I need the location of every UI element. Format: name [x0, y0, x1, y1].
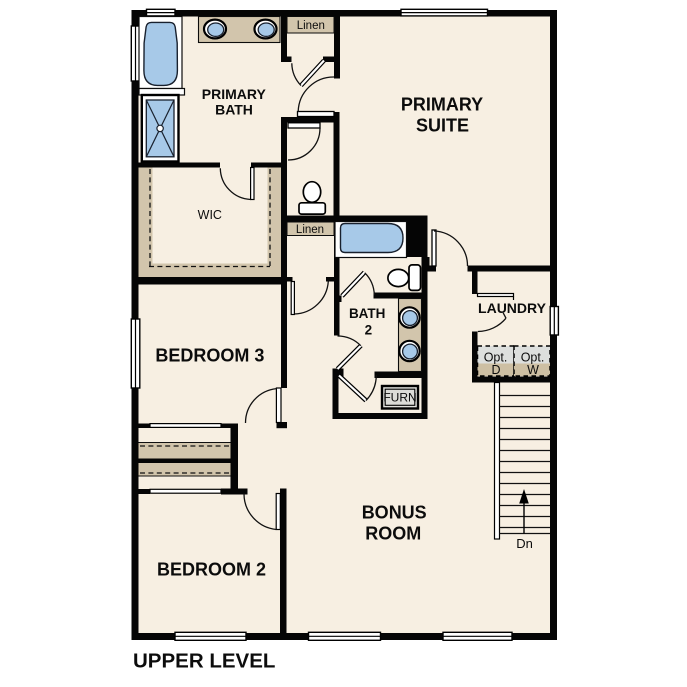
- svg-text:LAUNDRY: LAUNDRY: [478, 300, 547, 316]
- svg-text:FURN: FURN: [383, 391, 416, 405]
- svg-text:Linen: Linen: [297, 20, 325, 32]
- svg-text:Linen: Linen: [296, 224, 324, 236]
- svg-text:BONUS: BONUS: [362, 503, 427, 523]
- svg-text:D: D: [491, 363, 500, 377]
- svg-text:PRIMARY: PRIMARY: [401, 95, 483, 115]
- svg-text:SUITE: SUITE: [416, 116, 469, 136]
- svg-text:BEDROOM 3: BEDROOM 3: [155, 346, 264, 366]
- svg-text:BEDROOM 2: BEDROOM 2: [157, 560, 266, 580]
- svg-text:Dn: Dn: [516, 536, 533, 551]
- svg-text:BATH: BATH: [215, 101, 253, 117]
- svg-text:BATH: BATH: [349, 306, 386, 321]
- svg-text:WIC: WIC: [198, 208, 222, 222]
- svg-text:ROOM: ROOM: [365, 524, 421, 544]
- svg-text:UPPER LEVEL: UPPER LEVEL: [133, 650, 275, 673]
- svg-text:2: 2: [365, 322, 373, 337]
- svg-text:PRIMARY: PRIMARY: [202, 86, 267, 102]
- svg-text:W: W: [527, 363, 539, 377]
